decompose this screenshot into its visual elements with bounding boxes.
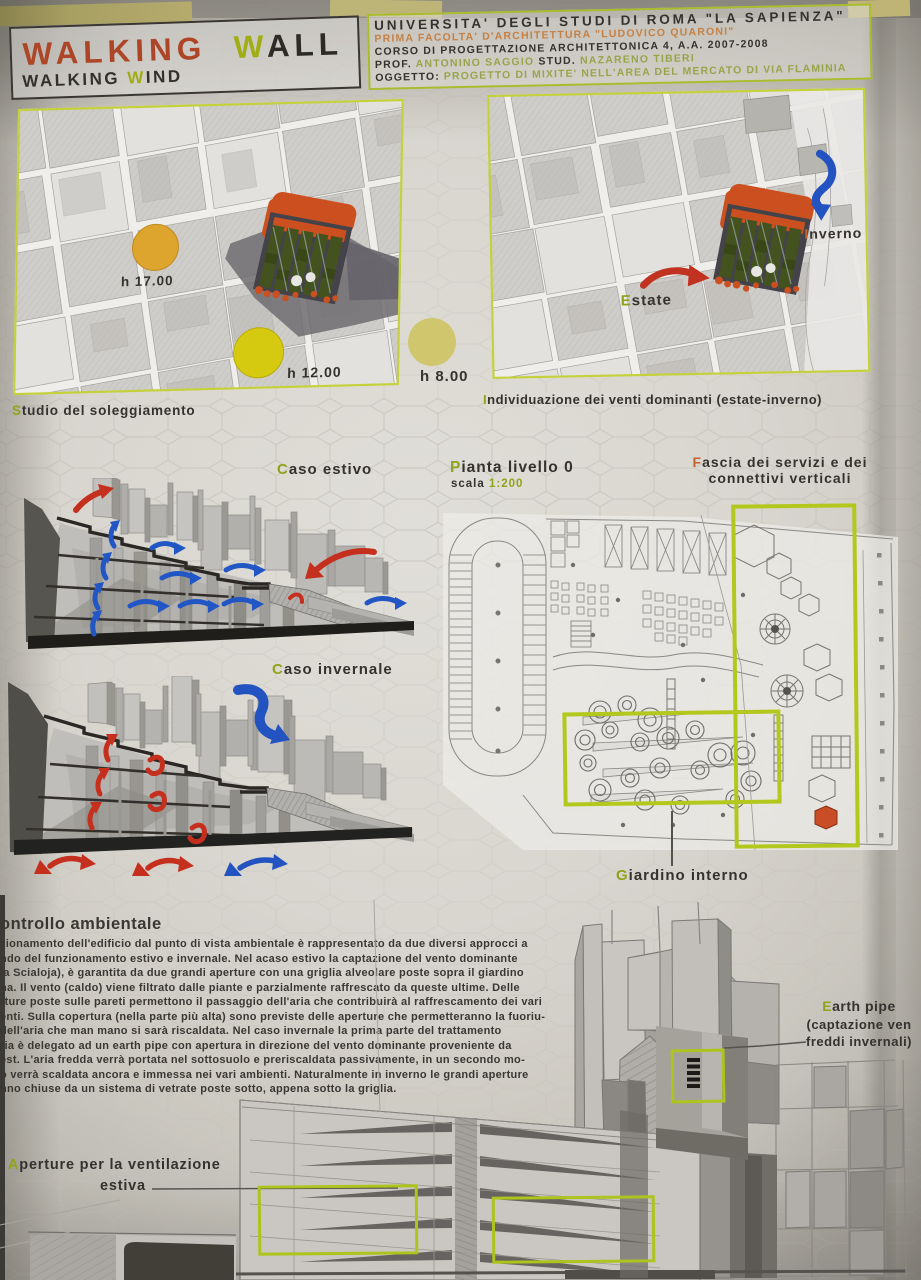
svg-text:h 17.00: h 17.00 [121, 273, 174, 289]
svg-text:Estate: Estate [621, 292, 673, 310]
svg-text:h 12.00: h 12.00 [287, 364, 342, 381]
svg-text:Inverno: Inverno [804, 225, 862, 242]
